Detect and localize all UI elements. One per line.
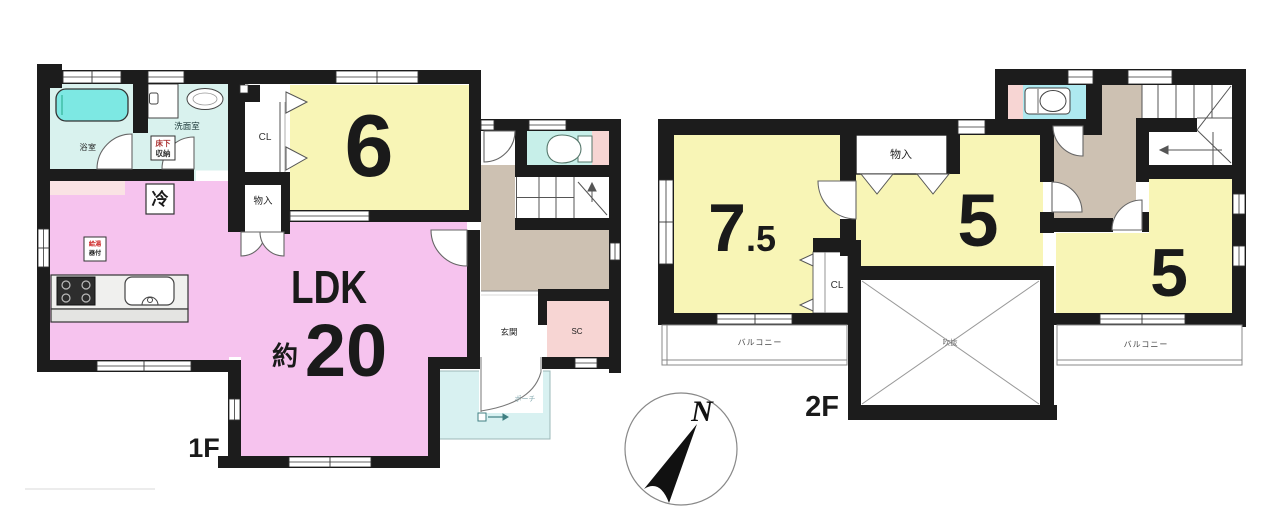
svg-text:バルコニー: バルコニー <box>1124 340 1169 349</box>
svg-text:CL: CL <box>831 280 844 291</box>
svg-text:2F: 2F <box>805 391 839 423</box>
svg-text:バルコニー: バルコニー <box>738 338 783 347</box>
svg-text:器付: 器付 <box>88 249 102 257</box>
svg-text:6: 6 <box>345 96 394 195</box>
svg-text:収納: 収納 <box>156 148 171 158</box>
svg-text:床下: 床下 <box>156 138 171 148</box>
svg-text:物入: 物入 <box>253 195 273 207</box>
svg-text:冷: 冷 <box>152 189 169 209</box>
svg-text:ポーチ: ポーチ <box>515 395 536 403</box>
svg-text:給湯: 給湯 <box>89 240 102 248</box>
svg-text:1F: 1F <box>188 433 220 463</box>
svg-text:約: 約 <box>272 341 298 371</box>
svg-text:LDK: LDK <box>291 261 367 313</box>
svg-text:7: 7 <box>708 190 746 266</box>
svg-text:N: N <box>690 395 714 428</box>
svg-text:洗面室: 洗面室 <box>174 121 200 131</box>
svg-text:.5: .5 <box>746 218 776 259</box>
svg-text:20: 20 <box>305 309 387 392</box>
svg-text:CL: CL <box>259 132 272 143</box>
svg-text:吹抜: 吹抜 <box>943 337 958 347</box>
svg-text:物入: 物入 <box>890 147 912 161</box>
svg-text:5: 5 <box>1150 235 1188 311</box>
svg-text:浴室: 浴室 <box>80 142 97 152</box>
svg-text:5: 5 <box>957 179 998 262</box>
svg-text:SC: SC <box>571 327 582 336</box>
svg-text:玄関: 玄関 <box>500 327 517 337</box>
